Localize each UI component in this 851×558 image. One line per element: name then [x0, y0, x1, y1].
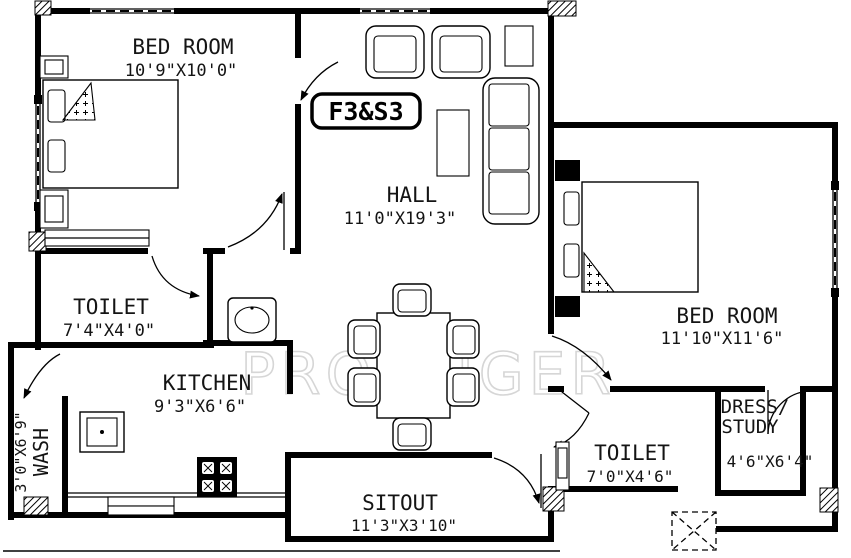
open-duct — [672, 512, 716, 550]
pillow — [48, 90, 65, 122]
pillow — [564, 192, 579, 225]
sofa-seat — [489, 172, 529, 214]
stove — [197, 457, 237, 497]
unit-label-text: F3&S3 — [328, 97, 403, 126]
window-top-hall — [360, 7, 430, 15]
sofa-seat — [489, 84, 529, 126]
sitout-name: SITOUT — [362, 491, 438, 515]
kitchen-name: KITCHEN — [163, 371, 252, 395]
side-table — [505, 26, 533, 66]
toilet1-dims: 7'4"X4'0" — [63, 321, 155, 341]
window-right-bedroom2 — [831, 181, 839, 297]
pillow — [48, 140, 65, 172]
tv-console — [437, 110, 469, 176]
wash-dims: 3'0"X6'9" — [12, 411, 30, 492]
wash-basin — [228, 298, 276, 342]
dress-study-name-2: STUDY — [721, 416, 779, 438]
pillow — [564, 244, 579, 277]
wash-name: WASH — [29, 428, 53, 476]
bedroom2-name: BED ROOM — [676, 304, 777, 328]
hall-dims: 11'0"X19'3" — [344, 209, 457, 229]
floor-plan: PROPTIGER — [0, 0, 851, 558]
sitout-dims: 11'3"X3'10" — [351, 516, 457, 535]
toilet1-name: TOILET — [73, 295, 149, 319]
dress-study-name-1: DRESS/ — [721, 396, 790, 418]
armchair-seat — [374, 36, 416, 72]
step — [108, 497, 174, 506]
unit-label-box: F3&S3 — [312, 94, 420, 128]
floor-plan-drawing: PROPTIGER — [0, 0, 851, 558]
hall-name: HALL — [387, 183, 438, 207]
dress-study-dims: 4'6"X6'4" — [727, 452, 814, 471]
bedside-table-inner — [45, 60, 63, 74]
toilet2-dims: 7'0"X4'6" — [587, 467, 674, 486]
sofa-seat — [489, 128, 529, 170]
armchair-seat — [440, 36, 482, 72]
toilet2-name: TOILET — [594, 441, 670, 465]
bedroom2-dims: 11'10"X11'6" — [661, 329, 784, 349]
bedroom1-name: BED ROOM — [132, 35, 233, 59]
bedroom1-dims: 10'9"X10'0" — [125, 61, 238, 81]
kitchen-dims: 9'3"X6'6" — [154, 397, 246, 417]
bedside-table-inner — [45, 196, 63, 222]
bedroom2-furniture — [564, 182, 698, 292]
window-top-bedroom1 — [90, 7, 174, 15]
dining-table — [377, 313, 450, 418]
toilet2-fixtures — [556, 442, 569, 490]
step — [108, 506, 174, 515]
